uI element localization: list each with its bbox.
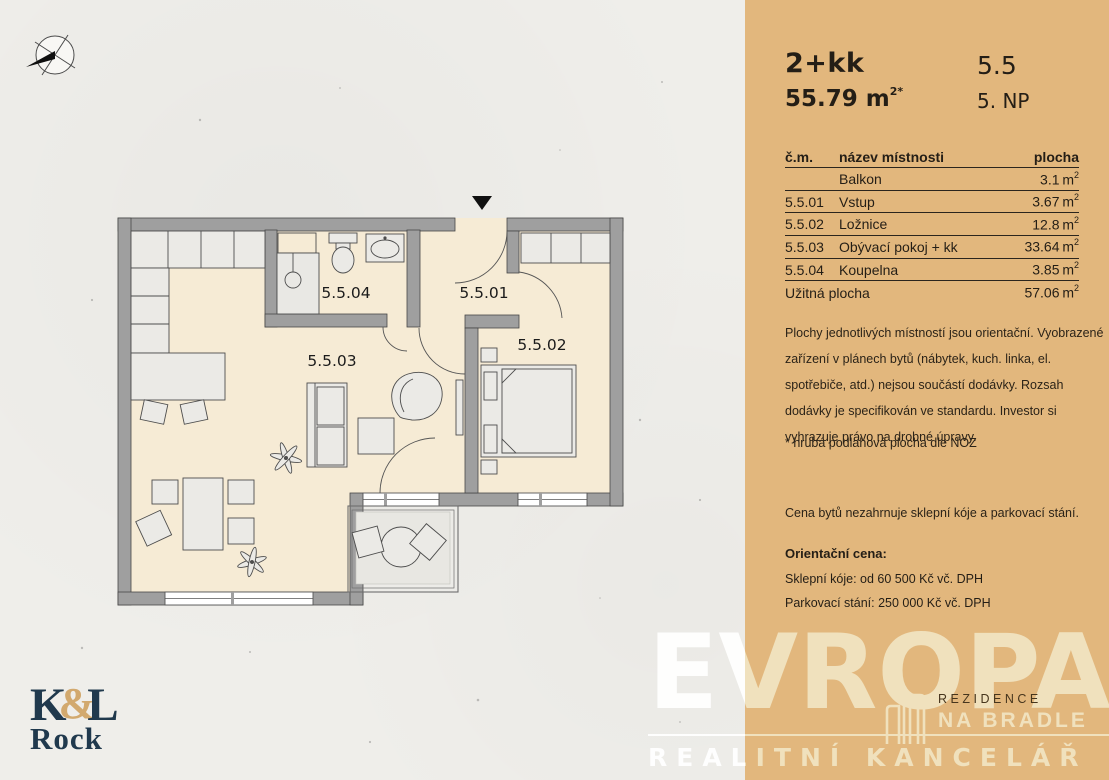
area-table: č.m. název místnosti plocha Balkon 3.1 m…: [785, 146, 1079, 303]
kitchen-island: [131, 353, 225, 400]
kl-rock-logo: K&L Rock: [30, 682, 140, 757]
footnote-text: * hrubá podlahová plocha dle NOZ: [785, 430, 1107, 456]
table-row: 5.5.02 Ložnice 12.8 m2: [785, 213, 1079, 236]
nightstand: [481, 348, 497, 362]
unit-layout: 2+kk: [785, 48, 864, 79]
rezidence-logo: REZIDENCE NA BRADLE: [884, 692, 1088, 746]
entrance-arrow-icon: [472, 196, 492, 210]
armchair: [392, 372, 442, 420]
compass-icon: [22, 22, 88, 88]
room-label-bathroom: 5.5.04: [321, 284, 370, 302]
price-note-text: Cena bytů nezahrnuje sklepní kóje a park…: [785, 500, 1107, 526]
table-row: 5.5.03 Obývací pokoj + kk 33.64 m2: [785, 236, 1079, 259]
unit-number: 5.5: [977, 51, 1017, 80]
coffee-table: [358, 418, 394, 454]
area-table-rows: Balkon 3.1 m2 5.5.01 Vstup 3.67 m2 5.5.0…: [785, 168, 1079, 281]
kl-letter-l: L: [87, 679, 118, 731]
flyer-page: 5.5.04 5.5.01 5.5.03 5.5.02 2+kk 5.5 55.…: [0, 0, 1109, 780]
building-icon: [884, 692, 928, 746]
rezidence-label: REZIDENCE: [938, 692, 1088, 706]
table-row: 5.5.01 Vstup 3.67 m2: [785, 191, 1079, 214]
table-row: Balkon 3.1 m2: [785, 168, 1079, 191]
table-row: 5.5.04 Koupelna 3.85 m2: [785, 259, 1079, 282]
unit-area: 55.79 m2*: [785, 86, 903, 112]
toilet: [329, 233, 357, 243]
nightstand: [481, 460, 497, 474]
room-label-bedroom: 5.5.02: [517, 336, 566, 354]
room-label-entry: 5.5.01: [459, 284, 508, 302]
area-table-header: č.m. název místnosti plocha: [785, 146, 1079, 168]
room-label-living: 5.5.03: [307, 352, 356, 370]
wardrobe: [521, 233, 610, 263]
kl-letter-k: K: [30, 679, 67, 731]
pricing-label: Orientační cena:: [785, 546, 887, 561]
shower: [277, 253, 319, 314]
floor-plan: 5.5.04 5.5.01 5.5.03 5.5.02: [110, 190, 630, 630]
balcony: [348, 506, 458, 592]
info-panel: 2+kk 5.5 55.79 m2* 5. NP č.m. název míst…: [745, 0, 1109, 780]
pricing-line-cellar: Sklepní kóje: od 60 500 Kč vč. DPH: [785, 572, 983, 586]
na-bradle-label: NA BRADLE: [938, 709, 1088, 733]
unit-floor: 5. NP: [977, 89, 1029, 113]
tv-board: [456, 380, 463, 435]
area-table-total: Užitná plocha 57.06 m2: [785, 281, 1079, 303]
dining-table: [183, 478, 223, 550]
pricing-line-parking: Parkovací stání: 250 000 Kč vč. DPH: [785, 596, 991, 610]
